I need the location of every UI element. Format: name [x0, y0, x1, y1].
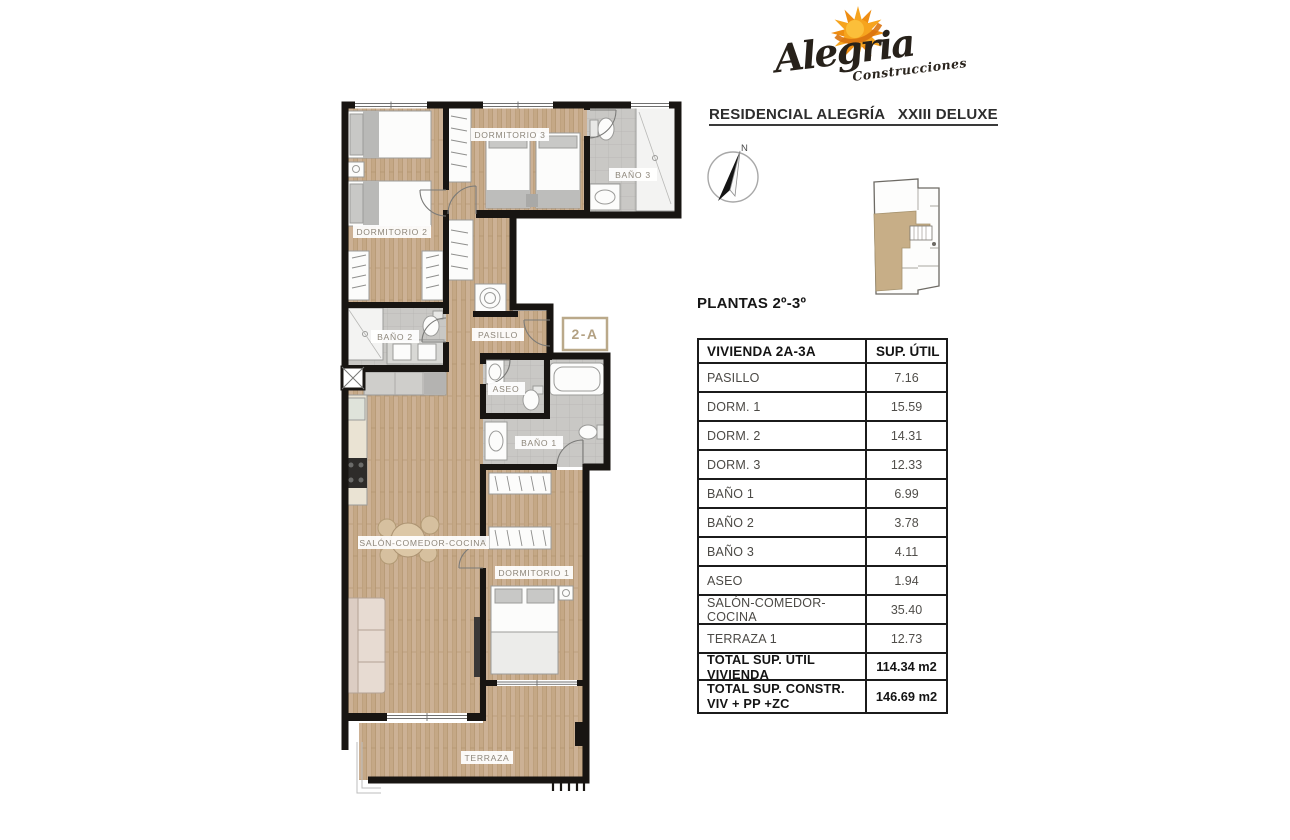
table-total-row: TOTAL SUP. ÚTIL VIVIENDA 114.34 m2 [699, 652, 946, 679]
areas-table: VIVIENDA 2A-3A SUP. ÚTIL PASILLO 7.16 DO… [697, 338, 948, 714]
label-pasillo: PASILLO [478, 330, 518, 340]
table-row: DORM. 3 12.33 [699, 449, 946, 478]
label-bano3: BAÑO 3 [615, 170, 651, 180]
row-value: 15.59 [867, 393, 946, 420]
row-label: BAÑO 3 [699, 538, 867, 565]
nightstand [348, 162, 364, 177]
company-logo: Alegria Construcciones [770, 2, 955, 98]
label-bano2: BAÑO 2 [377, 332, 413, 342]
total-value: 114.34 m2 [867, 654, 946, 679]
total-label-line1: TOTAL SUP. CONSTR. [707, 682, 845, 697]
compass-north-label: N [741, 143, 748, 154]
label-terraza: TERRAZA [464, 753, 509, 763]
table-row: DORM. 1 15.59 [699, 391, 946, 420]
nightstand [526, 194, 538, 207]
row-label: DORM. 2 [699, 422, 867, 449]
row-label: BAÑO 2 [699, 509, 867, 536]
table-row: SALÓN-COMEDOR-COCINA 35.40 [699, 594, 946, 623]
bathtub [550, 363, 604, 395]
label-dormitorio3: DORMITORIO 3 [474, 130, 545, 140]
sink [485, 422, 507, 460]
row-value: 3.78 [867, 509, 946, 536]
unit-badge: 2-A [563, 318, 607, 350]
row-label: BAÑO 1 [699, 480, 867, 507]
nightstand [559, 586, 573, 600]
row-label: SALÓN-COMEDOR-COCINA [699, 596, 867, 623]
table-row: BAÑO 3 4.11 [699, 536, 946, 565]
row-label: DORM. 3 [699, 451, 867, 478]
toilet [423, 316, 439, 336]
pillow [350, 114, 363, 155]
tv [474, 617, 480, 677]
label-aseo: ASEO [493, 384, 520, 394]
table-row: PASILLO 7.16 [699, 362, 946, 391]
toilet [523, 390, 539, 410]
table-header-sup-util: SUP. ÚTIL [867, 340, 946, 362]
total-label: TOTAL SUP. ÚTIL VIVIENDA [699, 654, 867, 679]
table-row: DORM. 2 14.31 [699, 420, 946, 449]
row-value: 1.94 [867, 567, 946, 594]
row-value: 7.16 [867, 364, 946, 391]
unit-label: 2-A [571, 326, 598, 342]
total-value: 146.69 m2 [867, 681, 946, 712]
table-row: TERRAZA 1 12.73 [699, 623, 946, 652]
floor-plan: DORMITORIO 3 BAÑO 3 DORMITORIO 2 BAÑO 2 … [335, 92, 685, 802]
label-salon: SALÓN-COMEDOR-COCINA [359, 538, 486, 548]
row-label: PASILLO [699, 364, 867, 391]
closet [447, 220, 473, 280]
label-bano1: BAÑO 1 [521, 438, 557, 448]
kitchen-sink [347, 398, 365, 420]
toilet [579, 425, 597, 439]
row-value: 6.99 [867, 480, 946, 507]
total-label-line2: VIV + PP +ZC [707, 697, 790, 712]
table-header-vivienda: VIVIENDA 2A-3A [699, 340, 867, 362]
table-row: ASEO 1.94 [699, 565, 946, 594]
chair [421, 516, 439, 534]
label-dormitorio1: DORMITORIO 1 [498, 568, 569, 578]
floor-level-label: PLANTAS 2º-3º [697, 295, 806, 312]
table-header-row: VIVIENDA 2A-3A SUP. ÚTIL [699, 340, 946, 362]
row-value: 12.33 [867, 451, 946, 478]
table-row: BAÑO 2 3.78 [699, 507, 946, 536]
row-value: 35.40 [867, 596, 946, 623]
wardrobe [422, 251, 443, 300]
page-title: RESIDENCIAL ALEGRÍA XXIII DELUXE [709, 106, 998, 126]
compass-north-icon: N [700, 140, 770, 210]
row-label: DORM. 1 [699, 393, 867, 420]
row-label: TERRAZA 1 [699, 625, 867, 652]
label-dormitorio2: DORMITORIO 2 [356, 227, 427, 237]
toilet [598, 118, 614, 140]
table-row: BAÑO 1 6.99 [699, 478, 946, 507]
row-label: ASEO [699, 567, 867, 594]
table-total-row: TOTAL SUP. CONSTR. VIV + PP +ZC 146.69 m… [699, 679, 946, 712]
row-value: 14.31 [867, 422, 946, 449]
row-value: 12.73 [867, 625, 946, 652]
key-plan [866, 176, 944, 298]
row-value: 4.11 [867, 538, 946, 565]
wardrobe [447, 108, 471, 182]
wardrobe [348, 251, 369, 300]
total-label: TOTAL SUP. CONSTR. VIV + PP +ZC [699, 681, 867, 712]
